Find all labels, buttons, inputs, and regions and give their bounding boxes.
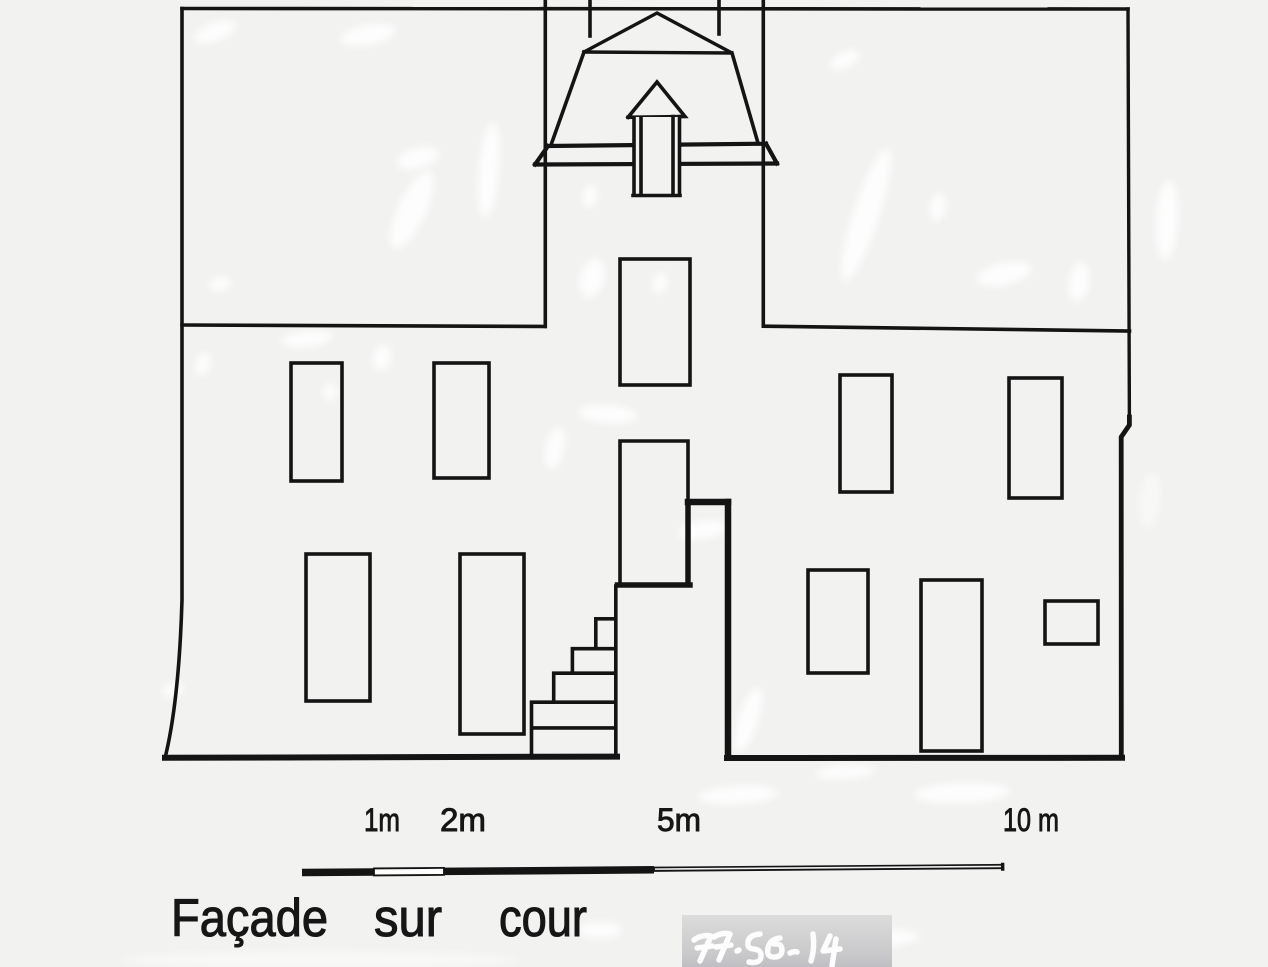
- svg-text:2m: 2m: [440, 802, 486, 838]
- svg-text:cour: cour: [499, 889, 587, 948]
- svg-text:5m: 5m: [657, 802, 701, 838]
- svg-text:sur: sur: [374, 889, 442, 948]
- svg-text:10 m: 10 m: [1003, 802, 1059, 838]
- svg-text:1m: 1m: [364, 802, 400, 838]
- svg-text:Façade: Façade: [171, 889, 328, 948]
